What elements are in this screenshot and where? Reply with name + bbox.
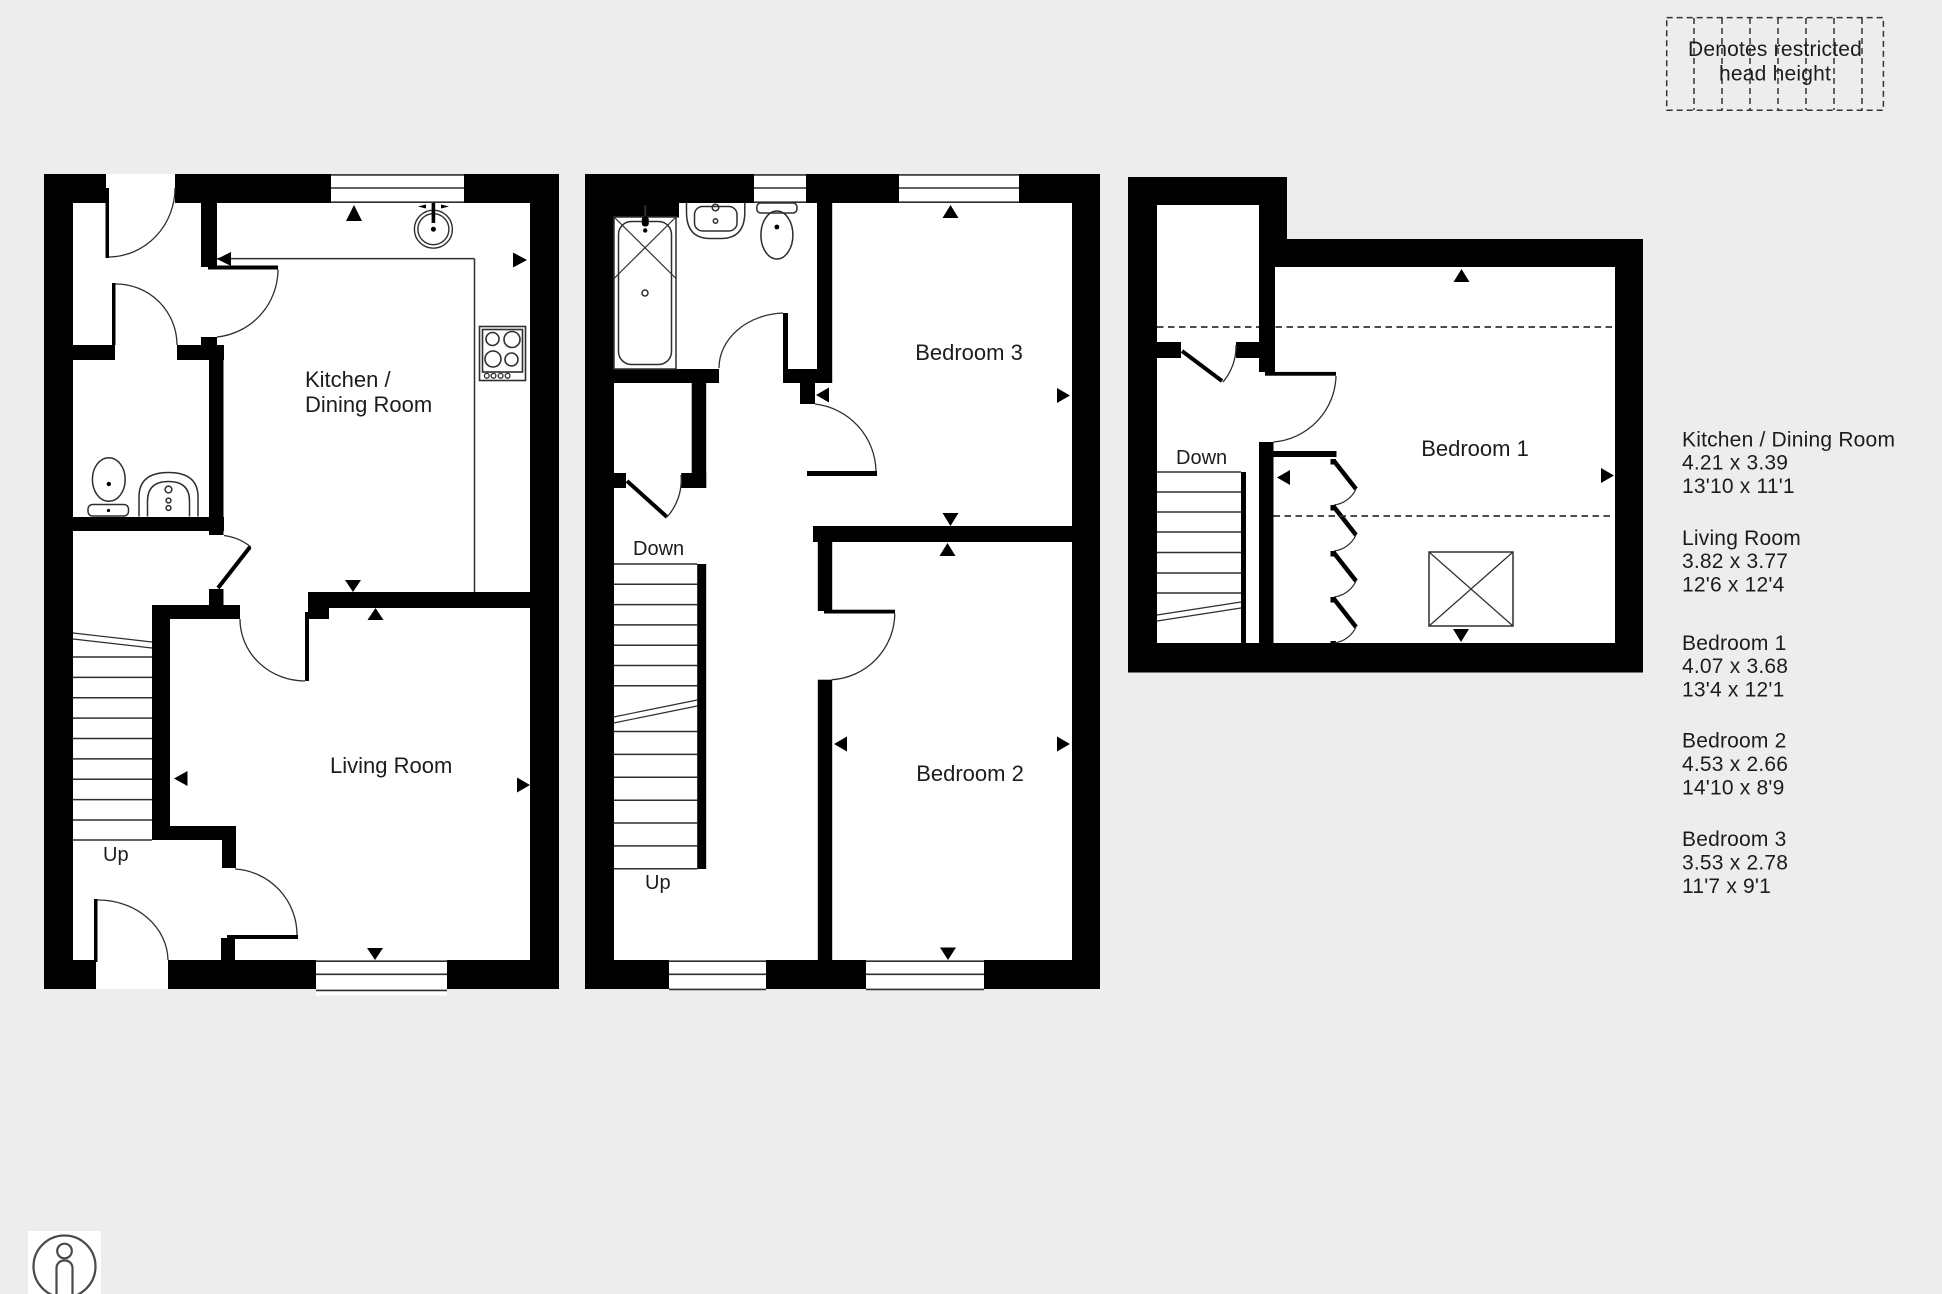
svg-text:head height: head height	[1719, 63, 1831, 86]
svg-text:14'10 x 8'9: 14'10 x 8'9	[1682, 777, 1784, 800]
svg-text:3.53 x 2.78: 3.53 x 2.78	[1682, 851, 1788, 874]
svg-text:Up: Up	[645, 872, 671, 894]
svg-text:Bedroom 3: Bedroom 3	[1682, 828, 1787, 851]
svg-text:Bedroom 1: Bedroom 1	[1421, 436, 1529, 461]
svg-text:Bedroom 2: Bedroom 2	[1682, 730, 1787, 753]
svg-text:12'6 x 12'4: 12'6 x 12'4	[1682, 574, 1785, 597]
svg-text:3.82 x 3.77: 3.82 x 3.77	[1682, 550, 1788, 573]
svg-text:Down: Down	[633, 538, 684, 560]
svg-text:Kitchen /: Kitchen /	[305, 367, 391, 392]
svg-text:Dining Room: Dining Room	[305, 392, 432, 417]
svg-text:4.53 x 2.66: 4.53 x 2.66	[1682, 753, 1788, 776]
svg-text:Bedroom 2: Bedroom 2	[916, 761, 1024, 786]
svg-text:Living Room: Living Room	[330, 753, 452, 778]
svg-text:13'10 x 11'1: 13'10 x 11'1	[1682, 475, 1795, 498]
svg-text:Denotes restricted: Denotes restricted	[1688, 38, 1862, 61]
svg-text:Up: Up	[103, 844, 129, 866]
svg-text:Bedroom 1: Bedroom 1	[1682, 632, 1787, 655]
svg-text:11'7 x 9'1: 11'7 x 9'1	[1682, 875, 1771, 898]
svg-text:Down: Down	[1176, 447, 1227, 469]
svg-text:4.21 x 3.39: 4.21 x 3.39	[1682, 452, 1788, 475]
svg-text:13'4 x 12'1: 13'4 x 12'1	[1682, 679, 1784, 702]
svg-text:Bedroom 3: Bedroom 3	[915, 340, 1023, 365]
svg-text:Kitchen / Dining Room: Kitchen / Dining Room	[1682, 428, 1895, 451]
svg-text:Living Room: Living Room	[1682, 527, 1801, 550]
svg-text:4.07 x 3.68: 4.07 x 3.68	[1682, 655, 1788, 678]
